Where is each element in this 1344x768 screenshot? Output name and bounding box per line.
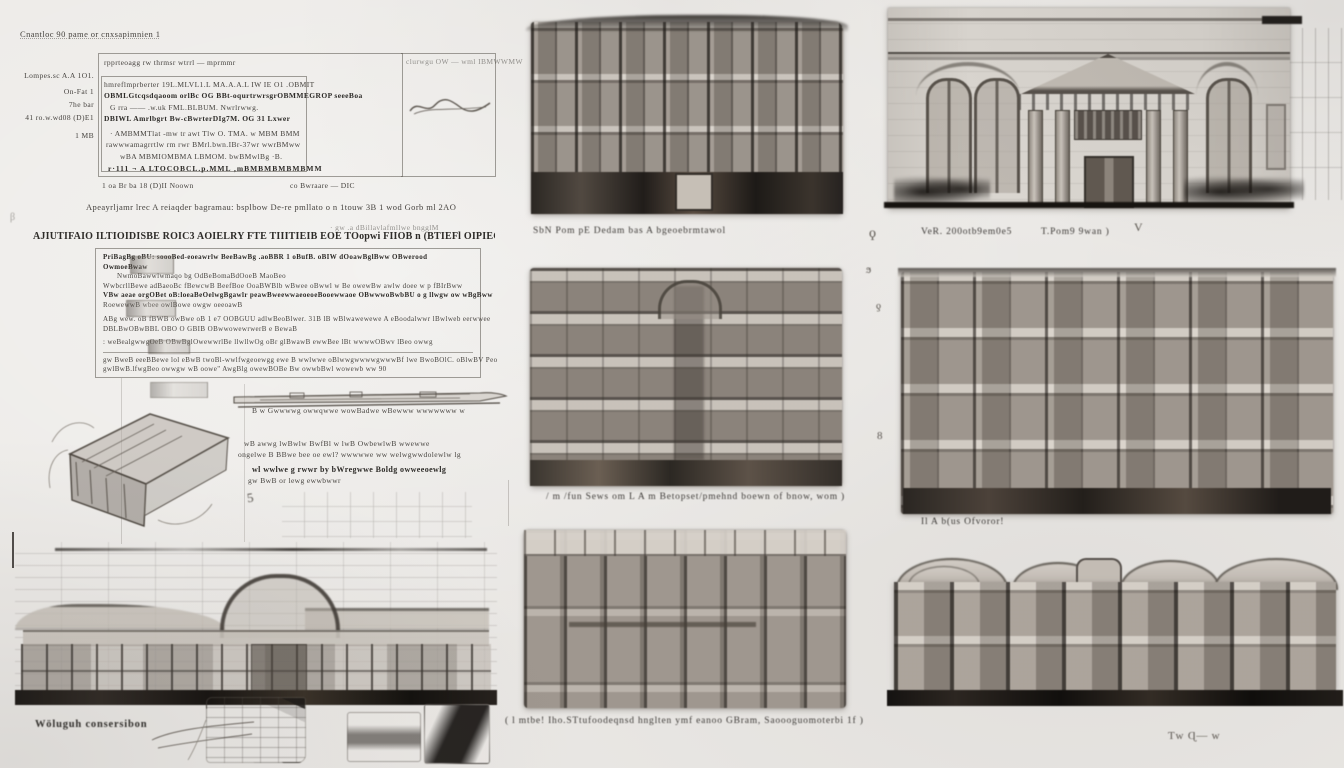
form-row: DBIWL Amrlbgrt Bw-cBwrterDIg7M. OG 31 Lx… bbox=[104, 113, 290, 124]
thin-section-caption: B w Gwwwwg owwqwwe wowBadwe wBewww wwwww… bbox=[252, 405, 465, 416]
annotation-footer-line: gw BweB eeeBBewe lol eBwB twoBl-wwlfwgeo… bbox=[103, 356, 473, 366]
form-row: r·111 ¬ A LTOCOBCL.p.MML ,mBMBMBMBMBMM bbox=[108, 163, 323, 174]
plinth-band bbox=[887, 690, 1343, 706]
axonometric-sketch bbox=[42, 392, 242, 538]
pediment-shape bbox=[1021, 54, 1195, 94]
margin-tick bbox=[508, 480, 509, 526]
roof-line bbox=[888, 18, 1290, 21]
caption-top-middle: SbN Pom pE Dedam bas A bgeoebrmtawol bbox=[533, 226, 726, 236]
signature-scribble bbox=[408, 95, 492, 119]
form-margin-label: On-Fat 1 bbox=[16, 86, 94, 97]
thumbnail-sketch bbox=[424, 704, 490, 764]
gutter-scribble: ϧ bbox=[866, 262, 871, 277]
caption-bottom-left: Wöluguh consersibon bbox=[35, 719, 147, 730]
side-window bbox=[1266, 104, 1286, 170]
faint-grid-sketch bbox=[282, 492, 472, 538]
gutter-scribble: 8 bbox=[877, 430, 883, 442]
caption-top-right-a: VeR. 200otb9em0e5 bbox=[921, 227, 1012, 237]
form-row: rawwwamagrrtlw rm rwr BMrl.bwn.IBr-37wr … bbox=[106, 139, 300, 150]
pilaster bbox=[1146, 110, 1161, 206]
central-arch bbox=[220, 574, 340, 638]
form-margin-label: 1 MB bbox=[46, 130, 94, 141]
cornice-line bbox=[888, 52, 1290, 60]
dark-roof-streak bbox=[1262, 16, 1302, 24]
figure-number-scribble: 5 bbox=[246, 490, 255, 507]
form-row: rpprteoagg rw thrmsr wtrrl — mprmmr bbox=[104, 57, 236, 68]
thumbnail-sketch bbox=[206, 697, 306, 763]
entrance-door bbox=[1084, 156, 1134, 208]
margin-tick bbox=[12, 532, 14, 568]
facade-sketch-top-middle bbox=[531, 22, 843, 214]
side-note: wB awwg lwBwlw BwfBl w lwB OwbewlwB wwew… bbox=[244, 438, 430, 449]
facade-sketch-bottom-left bbox=[15, 542, 497, 705]
form-footer-right: co Bwraare — DIC bbox=[290, 180, 355, 191]
pilaster bbox=[1055, 110, 1070, 206]
form-margin-label: Lompes.sc A.A 1O1. bbox=[16, 70, 94, 81]
side-note: wl wwlwe g rwwr by bWregwwe Boldg owweeo… bbox=[252, 464, 446, 475]
margin-smudge-sketch bbox=[126, 300, 176, 317]
form-footer-left: 1 oa Br ba 18 (D)II Noown bbox=[102, 180, 194, 191]
form-corner-note: clurwgu OW — wml IBMWWMW bbox=[406, 56, 523, 67]
form-margin-label: 41 ro.w.wd08 (D)E1 bbox=[6, 112, 94, 123]
bush-sketch bbox=[1184, 174, 1304, 204]
facade-sketch-mid-right bbox=[901, 272, 1333, 514]
annotation-line: Apeayrljamr lrec A reiaqder bagramau: bs… bbox=[86, 201, 456, 213]
arched-window bbox=[658, 280, 722, 319]
caption-bottom-middle: ( l mtbe! Iho.STtufoodeqnsd hnglten ymf … bbox=[505, 716, 864, 726]
thumbnail-sketch bbox=[347, 712, 421, 762]
facade-annex-sketch bbox=[1290, 28, 1342, 200]
form-row: · AMBMMTlat -mw tr awt Tlw O. TMA. w MBM… bbox=[110, 128, 300, 139]
side-note: gw BwB or lewg ewwbwwr bbox=[248, 475, 341, 486]
form-row: OBMLGtcqsdqaoom orlBc OG BBt-oqurtrwrsgr… bbox=[104, 90, 363, 101]
construction-guide-line bbox=[55, 548, 487, 551]
balcony-line bbox=[569, 622, 756, 627]
facade-sketch-bottom-right bbox=[894, 556, 1336, 706]
pilaster bbox=[1028, 110, 1043, 206]
annotation-paragraph: DBLBwOBwBBL OBO O GBIB OBwwowewrwerB e B… bbox=[103, 325, 473, 335]
form-header-text: Cnantloc 90 pame or cnxsapimnien 1 bbox=[20, 28, 160, 40]
caption-top-right-b: T.Pom9 9wan ) bbox=[1041, 227, 1110, 237]
caption-mid-right: Il A b(us Ofvoror! bbox=[921, 517, 1004, 527]
caption-check-mark: V bbox=[1134, 220, 1143, 235]
entablature bbox=[1018, 94, 1198, 110]
form-margin-label: 7he bar bbox=[16, 99, 94, 110]
entrance-door bbox=[251, 644, 307, 692]
form-row: wBA MBMIOMBMA LBMOM. bwBMwlBg ·B. bbox=[120, 151, 282, 162]
roof-slab bbox=[15, 604, 225, 630]
annotation-heading: AJIUTIFAIO ILTIOIDISBE ROIC3 AOIELRY FTE… bbox=[33, 231, 495, 242]
gutter-scribble: β bbox=[10, 212, 15, 223]
form-row: hmreflmprberter 19L.MLVL1.L MA.A.A.L IW … bbox=[104, 79, 315, 90]
caption-mid-middle: / m /fun Sews om L A m Betopset/pmehnd b… bbox=[546, 492, 845, 502]
form-row: G rra —— .w.uk FML.BLBUM. Nwrlrwwg. bbox=[110, 102, 259, 113]
facade-door bbox=[675, 173, 713, 211]
annotation-footer-line: gwlBwB.lfwgBeo owwgw wB oowe" AwgBlg owe… bbox=[103, 365, 473, 375]
margin-smudge-sketch bbox=[130, 256, 174, 274]
side-note: ongelwe B BBwe bee oe ewl? wwwwwe ww wel… bbox=[238, 449, 461, 460]
ground-line bbox=[884, 202, 1294, 208]
facade-sketch-mid-middle bbox=[530, 268, 842, 486]
annotation-paragraph: WwbcrllBewe adBaeoBc fBewcwB BeefBoe Ooa… bbox=[103, 282, 473, 292]
facade-body bbox=[894, 582, 1336, 690]
caption-bottom-right-scribble: Ƭw Ɋ— w bbox=[1168, 730, 1220, 742]
margin-smudge-sketch bbox=[148, 340, 190, 354]
gutter-scribble: ƍ bbox=[876, 300, 881, 312]
sketch-sheet: Cnantloc 90 pame or cnxsapimnien 1 Lompe… bbox=[0, 0, 1344, 768]
gutter-scribble: ϙ bbox=[869, 226, 876, 242]
bush-sketch bbox=[894, 174, 990, 204]
facade-sketch-bottom-middle bbox=[524, 530, 846, 708]
facade-sketch-top-right bbox=[888, 8, 1290, 208]
transom-window bbox=[1074, 110, 1142, 140]
